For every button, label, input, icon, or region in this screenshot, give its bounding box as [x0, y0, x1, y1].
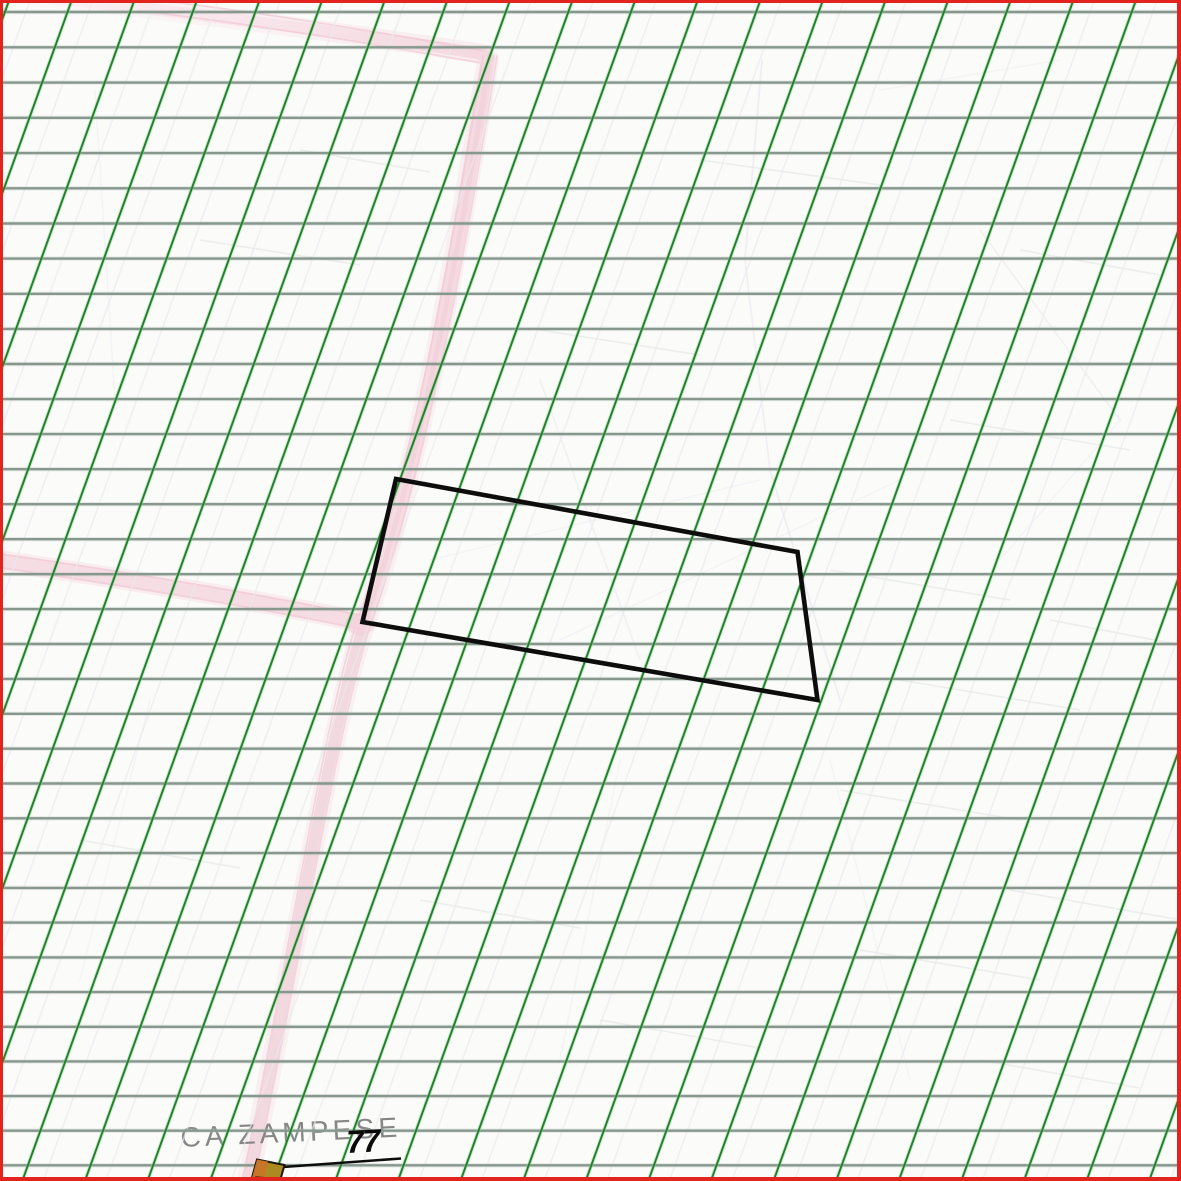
svg-text:77: 77 [345, 1122, 383, 1160]
